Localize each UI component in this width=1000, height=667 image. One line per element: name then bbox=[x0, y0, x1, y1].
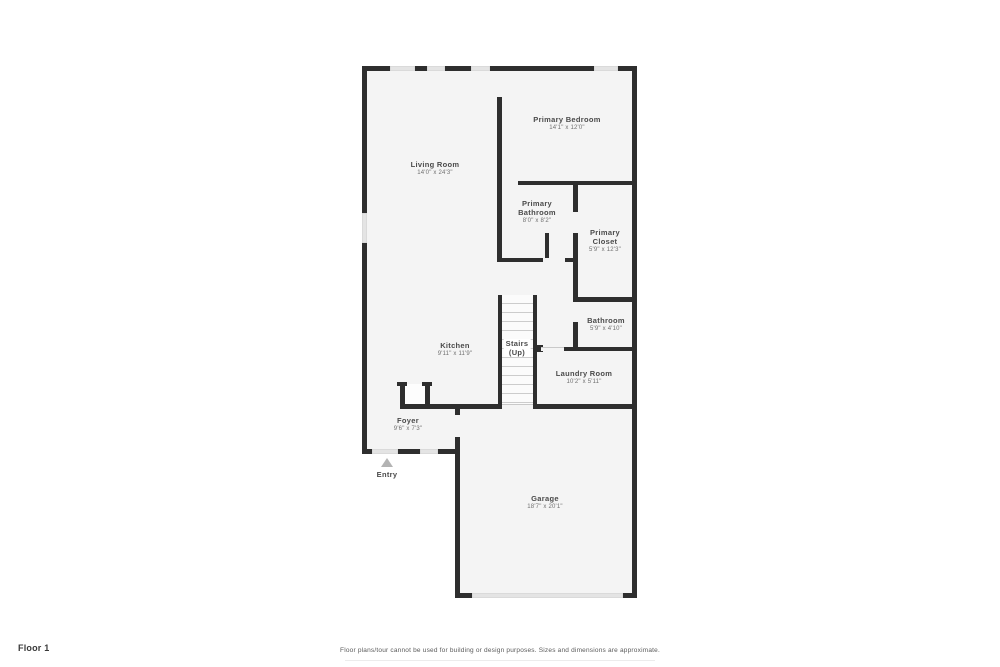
room-name: Bathroom bbox=[587, 316, 625, 325]
room-name: Laundry Room bbox=[556, 369, 613, 378]
room-label-laundry-room: Laundry Room 10'2" x 5'11" bbox=[556, 369, 613, 386]
room-dims: 5'9" x 4'10" bbox=[587, 325, 625, 333]
door-opening-laundry bbox=[541, 347, 564, 351]
wall-kitchen-closet-cap-left bbox=[397, 382, 407, 386]
room-label-foyer: Foyer 9'6" x 7'3" bbox=[394, 416, 422, 433]
disclaimer-text: Floor plans/tour cannot be used for buil… bbox=[0, 647, 1000, 654]
room-name: Primary Bedroom bbox=[533, 115, 600, 124]
room-dims: 14'1" x 12'0" bbox=[533, 124, 600, 132]
wall-closet-bottom bbox=[573, 297, 637, 302]
garage-door-marker bbox=[472, 593, 623, 598]
room-name: Living Room bbox=[411, 160, 460, 169]
wall-left bbox=[362, 66, 367, 454]
room-sub: (Up) bbox=[506, 348, 529, 357]
entry-label: Entry bbox=[377, 470, 398, 479]
window-marker bbox=[390, 66, 415, 71]
wall-kitchen-closet-left bbox=[400, 382, 405, 409]
door-opening-foyer-garage bbox=[455, 415, 460, 437]
wall-stairs-left bbox=[498, 295, 502, 408]
door-opening-primary-closet bbox=[573, 212, 578, 233]
room-dims: 8'0" x 8'2" bbox=[518, 217, 556, 225]
room-dims: 9'11" x 11'9" bbox=[438, 350, 473, 358]
wall-garage-left bbox=[455, 409, 460, 597]
room-name: Kitchen bbox=[438, 341, 473, 350]
door-leaf-primary-bath bbox=[545, 233, 549, 260]
wall-kitchen-closet-right bbox=[425, 382, 430, 409]
floor-plan: Living Room 14'0" x 24'3" Primary Bedroo… bbox=[0, 0, 1000, 667]
room-dims: 10'2" x 5'11" bbox=[556, 378, 613, 386]
room-name: Foyer bbox=[394, 416, 422, 425]
room-label-kitchen: Kitchen 9'11" x 11'9" bbox=[438, 341, 473, 358]
room-name: Garage bbox=[527, 494, 563, 503]
room-label-primary-bathroom: Primary Bathroom 8'0" x 8'2" bbox=[518, 199, 556, 225]
room-dims: 14'0" x 24'3" bbox=[411, 169, 460, 177]
wall-primary-bath-bottom bbox=[497, 258, 578, 262]
room-name: Stairs bbox=[506, 339, 529, 348]
room-dims: 5'9" x 12'3" bbox=[589, 246, 621, 254]
door-opening-primary-bath bbox=[543, 258, 565, 262]
room-dims: 18'7" x 20'1" bbox=[527, 503, 563, 511]
floor-plan-page: Living Room 14'0" x 24'3" Primary Bedroo… bbox=[0, 0, 1000, 667]
window-marker bbox=[427, 66, 445, 71]
entry-door-marker bbox=[420, 449, 438, 454]
room-label-primary-closet: Primary Closet 5'9" x 12'3" bbox=[589, 228, 621, 254]
room-name: Bathroom bbox=[518, 208, 556, 217]
window-marker bbox=[594, 66, 618, 71]
wall-bath-closet-divider bbox=[573, 185, 578, 302]
window-marker bbox=[372, 449, 398, 454]
wall-kitchen-closet-cap-right bbox=[422, 382, 432, 386]
room-label-bathroom: Bathroom 5'9" x 4'10" bbox=[587, 316, 625, 333]
room-label-garage: Garage 18'7" x 20'1" bbox=[527, 494, 563, 511]
footer-divider bbox=[345, 660, 655, 661]
room-label-stairs: Stairs (Up) bbox=[504, 339, 531, 357]
window-marker bbox=[471, 66, 490, 71]
entry-arrow-icon bbox=[381, 458, 393, 467]
room-name: Closet bbox=[589, 237, 621, 246]
room-label-living-room: Living Room 14'0" x 24'3" bbox=[411, 160, 460, 177]
wall-livingroom-bedroom bbox=[497, 97, 502, 262]
stairs-bottom-opening bbox=[502, 404, 533, 409]
room-name: Primary bbox=[518, 199, 556, 208]
room-name: Primary bbox=[589, 228, 621, 237]
room-label-primary-bedroom: Primary Bedroom 14'1" x 12'0" bbox=[533, 115, 600, 132]
wall-right bbox=[632, 66, 637, 597]
window-marker bbox=[362, 213, 367, 243]
room-dims: 9'6" x 7'3" bbox=[394, 425, 422, 433]
kitchen-closet-interior bbox=[405, 384, 425, 404]
